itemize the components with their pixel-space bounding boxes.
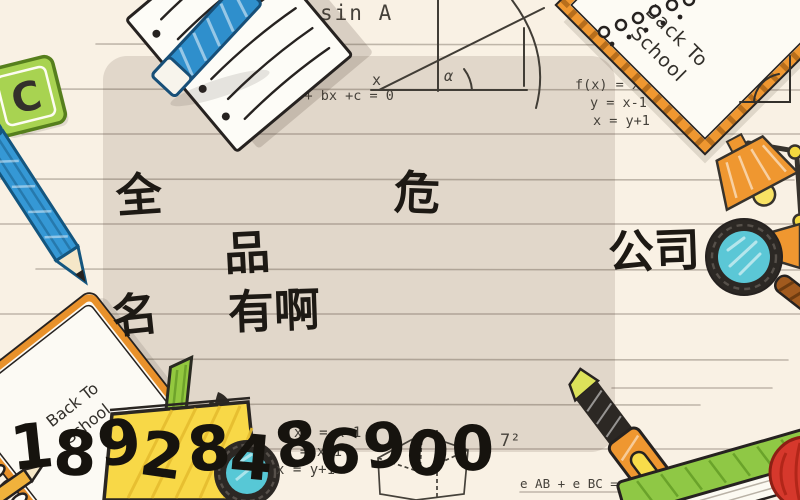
phone-number: 18928486900	[10, 408, 496, 481]
axis-x-label: x	[372, 71, 381, 89]
angle-label: α	[444, 67, 454, 85]
y-top-text: y = x-1	[590, 95, 647, 111]
poster-root: sin A x α ax2 + bx +c = 0	[0, 0, 800, 500]
letter-tile-c: C	[0, 54, 70, 141]
blue-pencil-doodle	[0, 115, 96, 289]
seven-squared-text: 7²	[500, 431, 520, 451]
title-chars-gongsi: 公司	[607, 226, 701, 275]
title-char-quan: 全	[114, 170, 163, 219]
title-char-pin: 品	[223, 229, 271, 277]
title-chars-youa: 有啊	[227, 286, 321, 335]
x-top-text: x = y+1	[593, 113, 650, 129]
title-char-wei: 危	[393, 169, 441, 217]
title-char-ming: 名	[110, 290, 161, 341]
